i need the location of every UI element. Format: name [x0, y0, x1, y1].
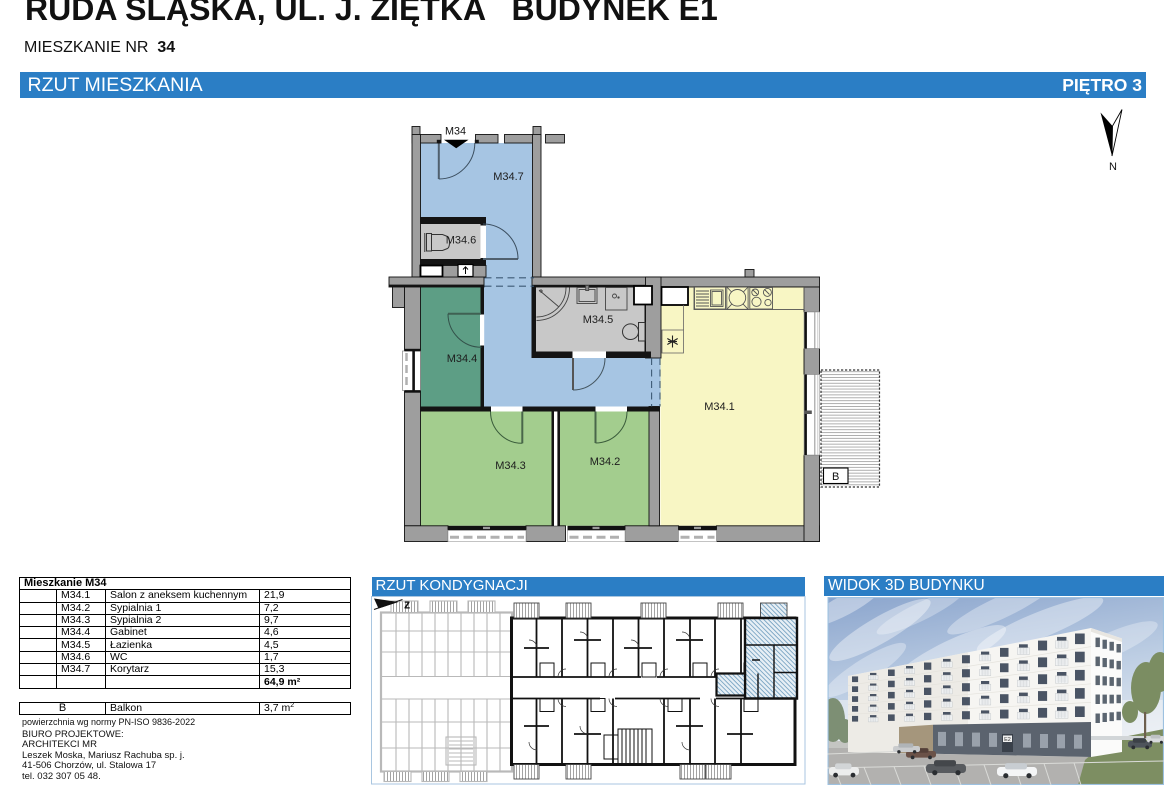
svg-text:E2: E2: [1004, 737, 1011, 743]
svg-text:B: B: [832, 471, 839, 483]
svg-text:N: N: [1109, 161, 1117, 173]
svg-text:z: z: [404, 598, 410, 612]
svg-text:M34.4: M34.4: [447, 353, 478, 365]
svg-text:M34.3: M34.3: [495, 460, 526, 472]
svg-text:M34: M34: [445, 126, 466, 138]
svg-text:M34.6: M34.6: [446, 235, 477, 247]
svg-text:M34.1: M34.1: [704, 401, 735, 413]
svg-text:M34.2: M34.2: [590, 456, 621, 468]
svg-text:M34.5: M34.5: [583, 314, 614, 326]
svg-text:M34.7: M34.7: [493, 171, 524, 183]
